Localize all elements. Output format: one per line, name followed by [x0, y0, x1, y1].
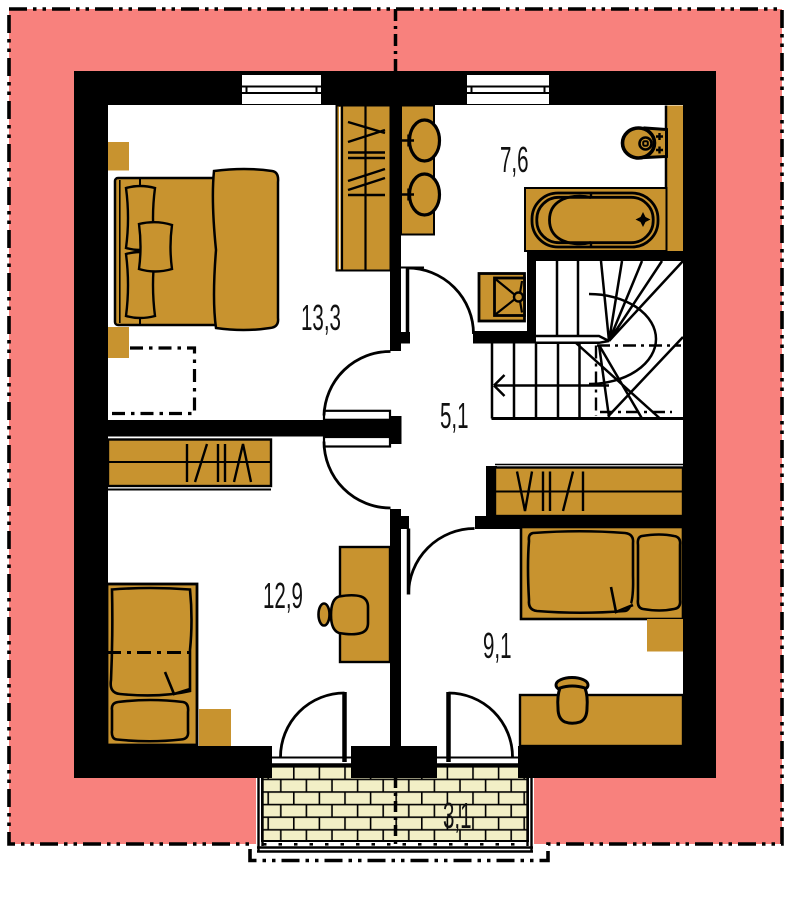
svg-text:9,1: 9,1: [483, 626, 512, 667]
svg-text:7,6: 7,6: [500, 140, 529, 181]
svg-text:13,3: 13,3: [301, 298, 341, 339]
svg-text:12,9: 12,9: [263, 576, 303, 617]
svg-text:5,1: 5,1: [440, 396, 469, 437]
svg-text:3,1: 3,1: [443, 796, 472, 837]
